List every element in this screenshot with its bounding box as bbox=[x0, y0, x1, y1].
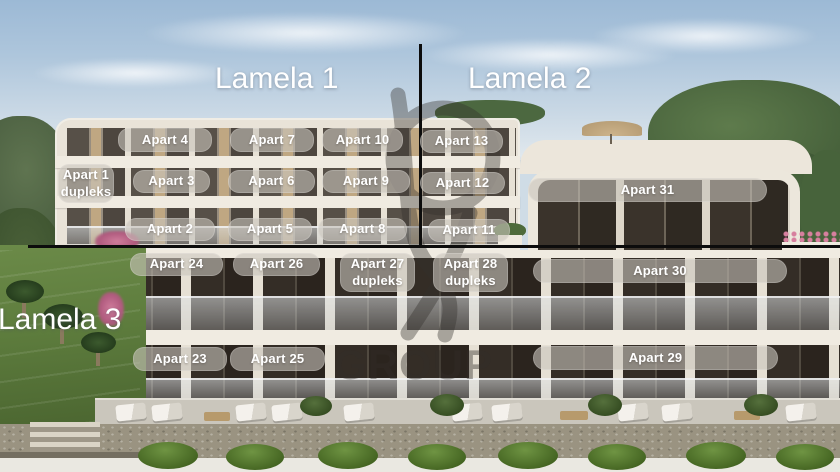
apartment-label-text: Apart 25 bbox=[251, 351, 305, 367]
hedge-bush bbox=[498, 442, 558, 469]
parasol-icon bbox=[582, 121, 642, 136]
apartment-label-text: Apart 31 bbox=[621, 182, 675, 198]
sun-lounger bbox=[115, 402, 147, 421]
apartment-label-text: Apart 29 bbox=[629, 350, 683, 366]
hedge-bush bbox=[138, 442, 198, 469]
section-title-lamela-1: Lamela 1 bbox=[215, 62, 338, 96]
apartment-label-apart-4[interactable]: Apart 4 bbox=[118, 128, 212, 152]
apartment-sublabel-text: dupleks bbox=[445, 273, 496, 289]
apartment-label-apart-11[interactable]: Apart 11 bbox=[428, 219, 510, 242]
apartment-label-text: Apart 26 bbox=[250, 256, 304, 272]
apartment-label-text: Apart 27 bbox=[351, 256, 405, 272]
apartment-label-text: Apart 9 bbox=[343, 173, 389, 189]
apartment-label-apart-25[interactable]: Apart 25 bbox=[230, 347, 325, 371]
terrace-bush bbox=[430, 394, 464, 416]
apartment-sublabel-text: dupleks bbox=[352, 273, 403, 289]
sun-lounger bbox=[343, 402, 375, 421]
hedge-bush bbox=[776, 444, 834, 470]
apartment-label-apart-31[interactable]: Apart 31 bbox=[528, 178, 767, 202]
section-title-lamela-2: Lamela 2 bbox=[468, 62, 591, 96]
apartment-label-apart-26[interactable]: Apart 26 bbox=[233, 253, 320, 276]
sun-lounger bbox=[271, 402, 303, 421]
apartment-label-text: Apart 28 bbox=[444, 256, 498, 272]
apartment-label-text: Apart 5 bbox=[247, 221, 293, 237]
apartment-label-text: Apart 24 bbox=[150, 256, 204, 272]
apartment-label-text: Apart 8 bbox=[339, 221, 385, 237]
apartment-label-apart-23[interactable]: Apart 23 bbox=[133, 347, 227, 371]
sun-lounger bbox=[151, 402, 183, 421]
apartment-label-apart-1-dupleks[interactable]: Apart 1dupleks bbox=[58, 164, 114, 203]
apartment-label-apart-27-dupleks[interactable]: Apart 27dupleks bbox=[340, 253, 415, 292]
apartment-label-apart-24[interactable]: Apart 24 bbox=[130, 253, 223, 276]
apartment-label-apart-30[interactable]: Apart 30 bbox=[533, 259, 787, 283]
apartment-sublabel-text: dupleks bbox=[61, 184, 112, 200]
apartment-label-text: Apart 10 bbox=[336, 132, 390, 148]
apartment-label-apart-3[interactable]: Apart 3 bbox=[133, 170, 210, 193]
apartment-label-text: Apart 7 bbox=[249, 132, 295, 148]
cloud bbox=[590, 18, 820, 54]
apartment-label-apart-9[interactable]: Apart 9 bbox=[322, 170, 410, 193]
sun-lounger bbox=[785, 402, 817, 421]
apartment-label-text: Apart 11 bbox=[443, 222, 496, 238]
apartment-label-apart-6[interactable]: Apart 6 bbox=[228, 170, 315, 193]
apartment-label-text: Apart 3 bbox=[148, 173, 194, 189]
apartment-label-apart-2[interactable]: Apart 2 bbox=[125, 218, 215, 241]
section-title-lamela-3: Lamela 3 bbox=[0, 303, 121, 337]
apartment-label-text: Apart 1 bbox=[63, 167, 109, 183]
sun-lounger bbox=[661, 402, 693, 421]
watermark-group-text: GROUP bbox=[334, 341, 493, 389]
building-render-scene: GROUP Lamela 1 Lamela 2 Lamela 3 Apart 4… bbox=[0, 0, 840, 472]
terrace-bush bbox=[300, 396, 332, 416]
apartment-label-apart-12[interactable]: Apart 12 bbox=[420, 172, 505, 194]
hedge-bush bbox=[686, 442, 746, 469]
apartment-label-apart-29[interactable]: Apart 29 bbox=[533, 346, 778, 370]
apartment-label-text: Apart 30 bbox=[633, 263, 687, 279]
apartment-label-text: Apart 6 bbox=[248, 173, 294, 189]
apartment-label-text: Apart 12 bbox=[436, 175, 490, 191]
hedge-bush bbox=[408, 444, 466, 470]
terrace-bush bbox=[588, 394, 622, 416]
building-right-roof bbox=[520, 140, 812, 174]
apartment-label-apart-8[interactable]: Apart 8 bbox=[318, 218, 407, 241]
hedge-bush bbox=[226, 444, 284, 470]
apartment-label-apart-7[interactable]: Apart 7 bbox=[230, 128, 314, 152]
apartment-label-apart-5[interactable]: Apart 5 bbox=[228, 218, 312, 241]
terrace-bush bbox=[744, 394, 778, 416]
hedge-bush bbox=[318, 442, 378, 469]
apartment-label-text: Apart 23 bbox=[153, 351, 207, 367]
wood-planter bbox=[204, 412, 230, 421]
cloud bbox=[30, 58, 240, 88]
apartment-label-apart-10[interactable]: Apart 10 bbox=[322, 128, 403, 152]
apartment-label-text: Apart 4 bbox=[142, 132, 188, 148]
parasol-pole bbox=[610, 134, 612, 144]
section-divider-horizontal bbox=[28, 245, 840, 248]
apartment-label-apart-28-dupleks[interactable]: Apart 28dupleks bbox=[433, 253, 508, 292]
sun-lounger bbox=[491, 402, 523, 421]
apartment-label-text: Apart 2 bbox=[147, 221, 193, 237]
hedge-bush bbox=[588, 444, 646, 470]
apartment-label-apart-13[interactable]: Apart 13 bbox=[420, 130, 503, 153]
apartment-label-text: Apart 13 bbox=[435, 133, 489, 149]
palm-tree bbox=[6, 280, 44, 303]
sun-lounger bbox=[235, 402, 267, 421]
wood-planter bbox=[560, 411, 588, 420]
